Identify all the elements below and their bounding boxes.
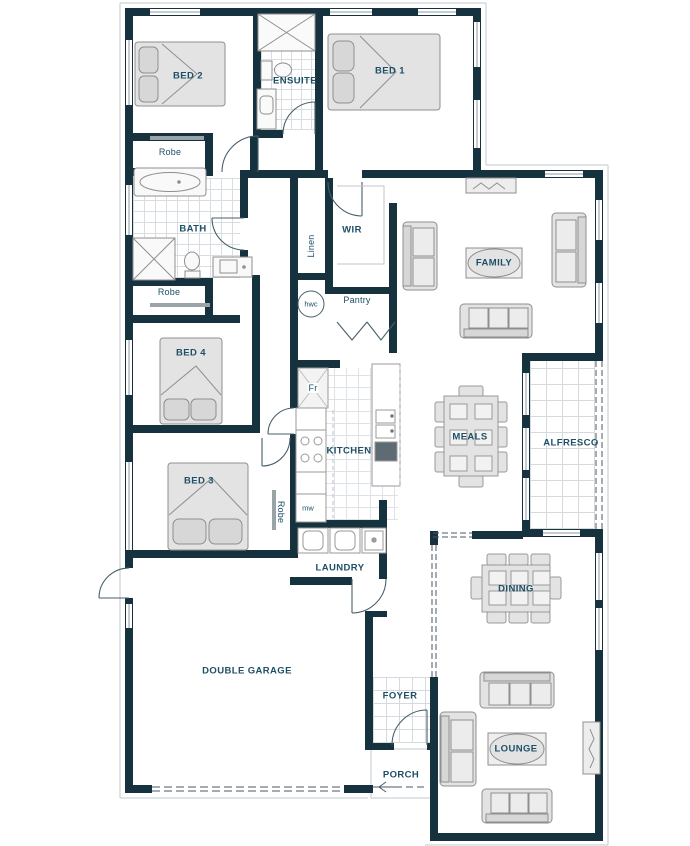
fixture-label-robe-bed3: Robe bbox=[276, 501, 286, 523]
bath-toilet-icon bbox=[185, 252, 201, 278]
fixture-label-hwc: hwc bbox=[304, 300, 317, 309]
room-label-alfresco: ALFRESCO bbox=[543, 438, 598, 449]
lounge-tv-unit bbox=[583, 722, 600, 774]
family-tv-unit bbox=[466, 178, 516, 193]
pantry-doors bbox=[337, 322, 395, 340]
family-sofa-left bbox=[403, 222, 437, 290]
laundry-tub-icon bbox=[362, 528, 386, 553]
room-label-family: FAMILY bbox=[476, 258, 512, 269]
bath-vanity-icon bbox=[213, 257, 252, 277]
fixture-label-fridge: Fr bbox=[308, 383, 319, 393]
room-label-porch: PORCH bbox=[383, 770, 419, 781]
room-label-bed3: BED 3 bbox=[184, 476, 214, 487]
dishwasher-icon bbox=[375, 442, 397, 461]
room-label-laundry: LAUNDRY bbox=[316, 563, 365, 574]
fixture-label-linen: Linen bbox=[306, 234, 316, 257]
room-label-lounge: LOUNGE bbox=[494, 744, 537, 755]
room-label-dining: DINING bbox=[498, 584, 534, 595]
dryer-icon bbox=[330, 528, 360, 553]
fixture-label-microwave: mw bbox=[302, 504, 314, 513]
cooktop-icon bbox=[296, 430, 326, 472]
room-label-garage: DOUBLE GARAGE bbox=[202, 666, 292, 677]
fixture-label-robe-bath: Robe bbox=[158, 287, 180, 297]
bathtub-icon bbox=[134, 168, 206, 196]
ensuite-vanity-icon bbox=[257, 89, 276, 129]
entry-door-arc bbox=[392, 710, 427, 745]
room-label-bath: BATH bbox=[179, 224, 206, 235]
garage-side-door-arc bbox=[99, 568, 129, 598]
lounge-sofa-top bbox=[480, 672, 554, 708]
room-label-bed1: BED 1 bbox=[375, 66, 405, 77]
wir-door-arc bbox=[328, 182, 362, 216]
bath-shower-icon bbox=[133, 238, 175, 280]
room-label-ensuite: ENSUITE bbox=[273, 76, 317, 87]
room-label-wir: WIR bbox=[342, 225, 362, 236]
ensuite-shower-icon bbox=[258, 14, 315, 51]
bed2-robe-shelf bbox=[150, 136, 204, 140]
kitchen-door-arc bbox=[268, 408, 294, 434]
fixture-label-robe-bed2: Robe bbox=[159, 147, 181, 157]
ensuite-toilet-tank bbox=[261, 61, 272, 80]
floorplan-graphics bbox=[0, 0, 690, 846]
laundry-door-arc bbox=[352, 579, 386, 613]
ensuite-fixtures bbox=[257, 14, 315, 129]
porch-arrow bbox=[379, 782, 398, 792]
washer-icon bbox=[298, 528, 328, 553]
room-label-kitchen: KITCHEN bbox=[326, 446, 371, 457]
bath-door-arc bbox=[212, 218, 244, 250]
family-sofa-bottom bbox=[460, 304, 532, 338]
ensuite-door-arc bbox=[283, 102, 315, 134]
fixture-label-pantry: Pantry bbox=[343, 295, 370, 305]
floorplan: BED 2 ENSUITE BED 1 Robe BATH WIR Linen … bbox=[0, 0, 690, 846]
bath-robe-shelf bbox=[150, 303, 210, 307]
family-sofa-right bbox=[552, 213, 586, 287]
lounge-sofa-bottom bbox=[482, 789, 552, 823]
laundry-fixtures bbox=[298, 528, 386, 553]
room-label-foyer: FOYER bbox=[383, 691, 418, 702]
bed3-door-arc bbox=[262, 438, 290, 466]
room-label-meals: MEALS bbox=[452, 432, 487, 443]
lounge-sofa-left bbox=[440, 712, 476, 786]
room-label-bed2: BED 2 bbox=[173, 71, 203, 82]
room-label-bed4: BED 4 bbox=[176, 348, 206, 359]
